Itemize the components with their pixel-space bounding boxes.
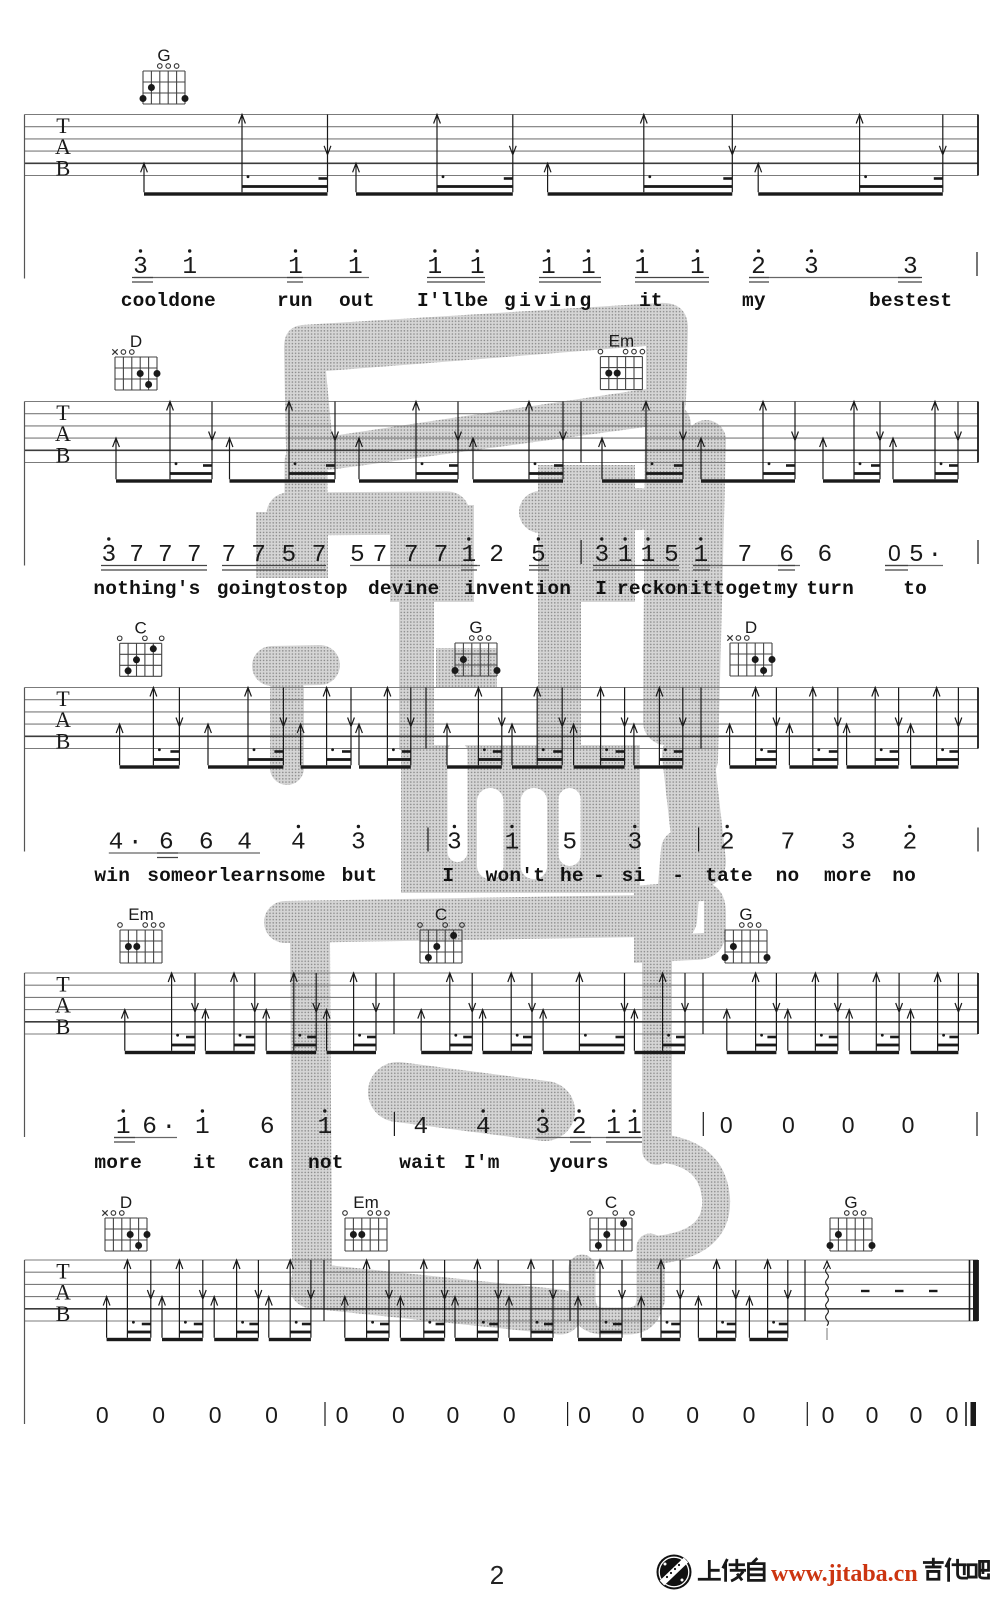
svg-text:7: 7 (781, 830, 796, 857)
svg-text:2: 2 (490, 1560, 504, 1590)
svg-text:-: - (593, 865, 605, 887)
svg-text:0: 0 (578, 1402, 591, 1428)
svg-text:si: si (622, 865, 646, 887)
svg-text:B: B (56, 443, 71, 468)
svg-text:-: - (672, 865, 684, 887)
svg-text:not: not (308, 1152, 344, 1174)
svg-text:G: G (157, 46, 170, 65)
svg-text:turn: turn (806, 578, 854, 600)
svg-text:0: 0 (888, 540, 901, 566)
svg-text:it: it (193, 1152, 217, 1174)
svg-text:wait: wait (399, 1152, 447, 1174)
svg-text:2: 2 (489, 542, 504, 569)
svg-text:can: can (248, 1152, 284, 1174)
svg-text:D: D (745, 618, 757, 637)
svg-text:I: I (595, 578, 607, 600)
svg-text:my: my (774, 578, 798, 600)
svg-text:0: 0 (96, 1402, 109, 1428)
svg-text:0: 0 (822, 1402, 835, 1428)
svg-text:to: to (903, 578, 927, 600)
svg-text:tate: tate (705, 865, 753, 887)
svg-text:B: B (56, 1301, 71, 1326)
svg-text:0: 0 (782, 1112, 795, 1138)
svg-text:C: C (135, 618, 147, 637)
svg-text:D: D (130, 332, 142, 351)
svg-text:4: 4 (476, 1114, 491, 1141)
svg-text:0: 0 (632, 1402, 645, 1428)
svg-text:it: it (639, 290, 663, 312)
svg-text:win: win (94, 865, 130, 887)
svg-text:4: 4 (413, 1114, 428, 1141)
svg-text:my: my (742, 290, 766, 312)
svg-text:0: 0 (743, 1402, 756, 1428)
svg-text:D: D (120, 1193, 132, 1212)
svg-text:0: 0 (902, 1112, 915, 1138)
svg-text:yours: yours (549, 1152, 609, 1174)
svg-text:cooldone: cooldone (121, 290, 216, 312)
svg-text:www.jitaba.cn: www.jitaba.cn (771, 1561, 918, 1587)
svg-text:1: 1 (505, 830, 520, 857)
svg-text:more: more (94, 1152, 142, 1174)
svg-text:no: no (892, 865, 916, 887)
svg-text:Em: Em (128, 905, 154, 924)
svg-text:0: 0 (866, 1402, 879, 1428)
svg-text:0: 0 (265, 1402, 278, 1428)
svg-text:0: 0 (392, 1402, 405, 1428)
svg-text:1: 1 (195, 1114, 210, 1141)
svg-text:but: but (342, 865, 378, 887)
svg-text:0: 0 (686, 1402, 699, 1428)
svg-text:G: G (739, 905, 752, 924)
svg-text:6: 6 (260, 1114, 275, 1141)
svg-text:giving: giving (504, 290, 595, 312)
svg-text:0: 0 (720, 1112, 733, 1138)
svg-text:0: 0 (447, 1402, 460, 1428)
svg-text:3: 3 (351, 830, 366, 857)
svg-text:3: 3 (447, 830, 462, 857)
svg-text:3: 3 (841, 830, 856, 857)
svg-text:more: more (824, 865, 872, 887)
svg-text:he: he (560, 865, 584, 887)
svg-text:G: G (469, 618, 482, 637)
svg-text:goingtostop: goingtostop (217, 578, 348, 600)
svg-text:nothing's: nothing's (93, 578, 200, 600)
svg-text:C: C (435, 905, 447, 924)
svg-text:I'm: I'm (464, 1152, 500, 1174)
svg-text:0: 0 (946, 1402, 959, 1428)
svg-text:out: out (339, 290, 375, 312)
svg-text:2: 2 (720, 830, 735, 857)
svg-text:invention: invention (464, 578, 571, 600)
svg-text:Em: Em (609, 332, 635, 351)
svg-text:B: B (56, 156, 71, 181)
svg-text:0: 0 (336, 1402, 349, 1428)
svg-text:B: B (56, 1014, 71, 1039)
svg-text:run: run (277, 290, 313, 312)
svg-text:0: 0 (209, 1402, 222, 1428)
svg-text:no: no (776, 865, 800, 887)
svg-text:0: 0 (842, 1112, 855, 1138)
svg-text:0: 0 (910, 1402, 923, 1428)
svg-text:6: 6 (818, 542, 833, 569)
svg-text:G: G (844, 1193, 857, 1212)
svg-text:5: 5 (562, 830, 577, 857)
svg-text:someorlearnsome: someorlearnsome (147, 865, 326, 887)
svg-text:devine: devine (368, 578, 439, 600)
svg-text:C: C (605, 1193, 617, 1212)
svg-text:bestest: bestest (869, 290, 952, 312)
svg-text:ittoget: ittoget (690, 578, 773, 600)
svg-text:0: 0 (152, 1402, 165, 1428)
svg-text:I'llbe: I'llbe (417, 290, 488, 312)
svg-text:B: B (56, 729, 71, 754)
svg-text:2: 2 (902, 830, 917, 857)
svg-text:4: 4 (291, 830, 306, 857)
svg-text:1: 1 (317, 1114, 332, 1141)
svg-text:3: 3 (627, 830, 642, 857)
svg-text:won't: won't (486, 865, 546, 887)
svg-text:reckon: reckon (617, 578, 688, 600)
svg-text:I: I (442, 865, 454, 887)
svg-text:0: 0 (503, 1402, 516, 1428)
svg-text:Em: Em (353, 1193, 379, 1212)
